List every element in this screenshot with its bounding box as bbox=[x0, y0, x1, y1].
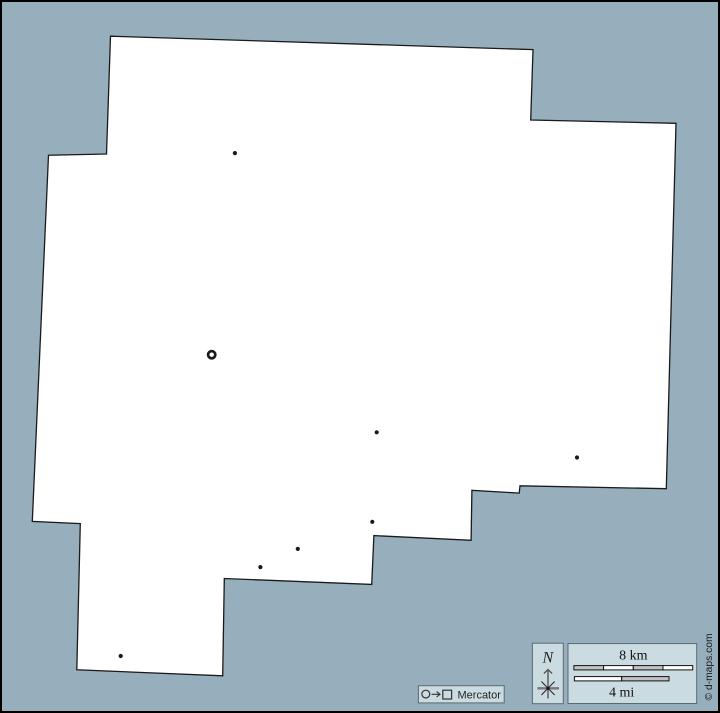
svg-text:Mercator: Mercator bbox=[458, 690, 502, 702]
svg-text:4 mi: 4 mi bbox=[609, 686, 634, 701]
svg-text:© d-maps.com: © d-maps.com bbox=[704, 633, 715, 700]
svg-text:8 km: 8 km bbox=[619, 649, 648, 664]
svg-text:N: N bbox=[541, 650, 554, 667]
